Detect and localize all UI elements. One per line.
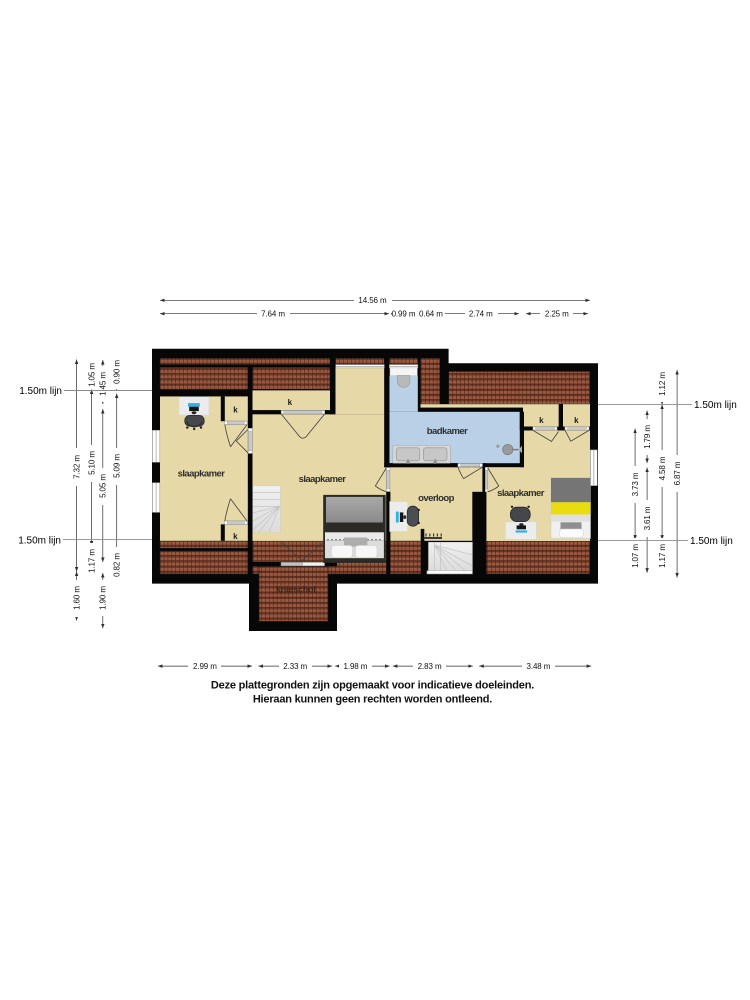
svg-text:1.60 m: 1.60 m [73, 586, 82, 610]
svg-text:1.45 m: 1.45 m [99, 372, 108, 396]
svg-text:k: k [288, 398, 293, 407]
svg-text:k: k [539, 416, 544, 425]
svg-text:slaapkamer: slaapkamer [299, 474, 347, 485]
svg-text:k: k [233, 532, 238, 541]
svg-text:Hieraan kunnen geen rechten wo: Hieraan kunnen geen rechten worden ontle… [253, 694, 492, 706]
svg-text:7.32 m: 7.32 m [73, 455, 82, 479]
svg-text:14.56 m: 14.56 m [358, 296, 387, 305]
svg-text:5.09 m: 5.09 m [113, 454, 122, 478]
svg-text:6.87 m: 6.87 m [673, 461, 682, 485]
svg-text:k: k [574, 416, 579, 425]
svg-text:1.05 m: 1.05 m [88, 363, 97, 387]
svg-text:1.79 m: 1.79 m [643, 425, 652, 449]
svg-text:k: k [233, 406, 238, 415]
svg-text:0.82 m: 0.82 m [113, 553, 122, 577]
svg-text:0.90 m: 0.90 m [113, 360, 122, 384]
svg-text:7.64 m: 7.64 m [261, 310, 285, 319]
svg-text:3.73 m: 3.73 m [631, 472, 640, 496]
svg-text:2.83 m: 2.83 m [418, 662, 442, 671]
svg-text:3.61 m: 3.61 m [643, 506, 652, 530]
svg-text:1.17 m: 1.17 m [88, 549, 97, 573]
svg-text:badkamer: badkamer [427, 426, 468, 437]
svg-text:2.74 m: 2.74 m [469, 310, 493, 319]
svg-text:4.58 m: 4.58 m [658, 456, 667, 480]
svg-text:Deze plattegronden zijn opgema: Deze plattegronden zijn opgemaakt voor i… [211, 680, 534, 692]
svg-text:1.50m lijn: 1.50m lijn [690, 536, 733, 547]
svg-text:5.10 m: 5.10 m [88, 451, 97, 475]
svg-text:2.25 m: 2.25 m [545, 310, 569, 319]
svg-text:slaapkamer: slaapkamer [497, 488, 545, 499]
svg-text:1.12 m: 1.12 m [658, 372, 667, 396]
svg-text:knieschot: knieschot [276, 585, 316, 595]
svg-text:1.50m lijn: 1.50m lijn [694, 400, 737, 411]
svg-text:3.48 m: 3.48 m [526, 662, 550, 671]
svg-text:1.98 m: 1.98 m [343, 662, 367, 671]
svg-text:0.99 m: 0.99 m [392, 310, 416, 319]
svg-text:overloop: overloop [418, 493, 454, 504]
svg-text:slaapkamer: slaapkamer [178, 468, 226, 479]
svg-text:1.07 m: 1.07 m [631, 544, 640, 568]
svg-text:1.50m lijn: 1.50m lijn [18, 536, 61, 547]
svg-text:2.33 m: 2.33 m [283, 662, 307, 671]
svg-text:5.05 m: 5.05 m [99, 474, 108, 498]
svg-text:1.17 m: 1.17 m [658, 544, 667, 568]
svg-text:1.50m lijn: 1.50m lijn [19, 386, 62, 397]
svg-text:1.90 m: 1.90 m [99, 586, 108, 610]
svg-text:2.99 m: 2.99 m [193, 662, 217, 671]
svg-text:0.64 m: 0.64 m [419, 310, 443, 319]
